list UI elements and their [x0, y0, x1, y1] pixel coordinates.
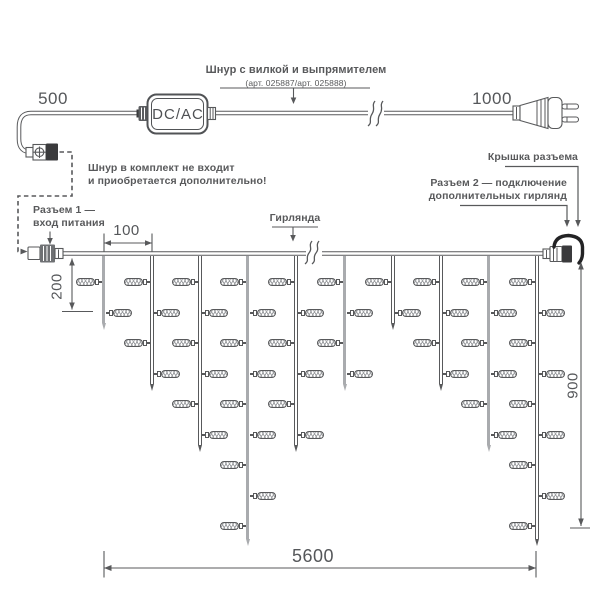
lamp-bulb	[305, 431, 324, 439]
lamp-stem	[291, 342, 294, 344]
led-lamp	[124, 278, 150, 286]
icicle-drop-tip	[391, 323, 395, 330]
cord-annotation-title: Шнур с вилкой и выпрямителем	[196, 64, 396, 76]
lamp-bulb	[220, 461, 239, 469]
led-lamp	[461, 339, 487, 347]
lamp-bulb	[305, 370, 324, 378]
led-lamp	[317, 278, 343, 286]
led-lamp	[268, 278, 294, 286]
led-lamp	[509, 339, 535, 347]
lamp-bulb	[354, 370, 373, 378]
led-lamp	[413, 339, 439, 347]
lamp-bulb	[172, 339, 191, 347]
lamp-stem	[195, 342, 198, 344]
icicle-drop-tip	[102, 323, 106, 330]
icicle-drop-tip	[487, 445, 491, 452]
icicle-drop-tip	[246, 539, 250, 546]
led-lamp	[202, 431, 228, 439]
lamp-bulb	[268, 400, 287, 408]
cap-label: Крышка разъема	[478, 151, 578, 163]
connector1-label-line2: вход питания	[33, 217, 105, 229]
lamp-stem	[243, 403, 246, 405]
icicle-drop-tip	[294, 445, 298, 452]
led-lamp	[220, 339, 246, 347]
lamp-bulb	[124, 278, 143, 286]
led-lamp	[539, 431, 565, 439]
lamp-bulb	[450, 370, 469, 378]
lamp-bulb	[509, 400, 528, 408]
connector1-label-line1: Разъем 1 —	[33, 204, 95, 216]
lamp-stem	[340, 281, 343, 283]
icicle-drop	[102, 256, 105, 323]
lamp-bulb	[498, 309, 517, 317]
led-lamp	[250, 370, 276, 378]
lamp-stem	[532, 464, 535, 466]
icicle-drop	[439, 256, 443, 384]
lamp-bulb	[257, 492, 276, 500]
icicle-drop	[343, 256, 346, 384]
lamp-bulb	[546, 370, 565, 378]
icicle-drop-tip	[343, 384, 347, 391]
lamp-bulb	[257, 431, 276, 439]
lamp-bulb	[220, 339, 239, 347]
lamp-bulb	[461, 400, 480, 408]
cord-not-included-line1: Шнур в комплект не входит	[88, 162, 235, 174]
icicle-drop	[246, 256, 249, 539]
lamp-bulb	[113, 309, 132, 317]
icicle-drop	[294, 256, 298, 445]
lamp-bulb	[365, 278, 384, 286]
lamp-stem	[147, 342, 150, 344]
connector2-label-line2: дополнительных гирлянд	[417, 190, 567, 202]
icicle-drop	[198, 256, 202, 445]
lamp-bulb	[268, 278, 287, 286]
led-lamp	[539, 309, 565, 317]
led-lamp	[202, 370, 228, 378]
led-lamp	[172, 400, 198, 408]
lamp-stem	[484, 403, 487, 405]
dim-200-label: 200	[48, 270, 65, 304]
led-lamp	[365, 278, 391, 286]
lamp-bulb	[172, 278, 191, 286]
led-lamp	[76, 278, 102, 286]
lamp-stem	[147, 281, 150, 283]
led-lamp	[124, 339, 150, 347]
led-lamp	[509, 400, 535, 408]
led-lamp	[220, 278, 246, 286]
led-lamp	[106, 309, 132, 317]
lamp-stem	[291, 403, 294, 405]
icicle-garland-diagram: DC/AC 500 1000 100 200 900 5600 Шнур с в…	[0, 0, 600, 600]
led-lamp	[347, 370, 373, 378]
lamp-bulb	[546, 309, 565, 317]
lamp-bulb	[461, 278, 480, 286]
icicle-drop-tip	[535, 539, 539, 546]
cord-annotation-subtitle: (арт. 025887/арт. 025888)	[196, 77, 396, 89]
led-lamp	[347, 309, 373, 317]
lamp-stem	[243, 342, 246, 344]
lamp-stem	[340, 342, 343, 344]
led-lamp	[202, 309, 228, 317]
lamp-bulb	[220, 278, 239, 286]
icicle-drop-tip	[150, 384, 154, 391]
led-lamp	[491, 370, 517, 378]
lamp-bulb	[317, 339, 336, 347]
led-lamp	[509, 278, 535, 286]
lamp-bulb	[509, 339, 528, 347]
led-lamp	[443, 309, 469, 317]
lamp-stem	[243, 525, 246, 527]
lamp-bulb	[124, 339, 143, 347]
led-lamp	[220, 522, 246, 530]
led-lamp	[298, 370, 324, 378]
lamp-stem	[436, 342, 439, 344]
lamp-bulb	[172, 400, 191, 408]
led-lamp	[268, 339, 294, 347]
dim-5600-label: 5600	[283, 546, 343, 567]
lamp-bulb	[161, 309, 180, 317]
led-lamp	[317, 339, 343, 347]
lamp-bulb	[257, 370, 276, 378]
lamp-bulb	[76, 278, 95, 286]
led-lamp	[509, 522, 535, 530]
lamp-bulb	[509, 278, 528, 286]
lamp-stem	[436, 281, 439, 283]
lamp-stem	[243, 281, 246, 283]
lamp-bulb	[317, 278, 336, 286]
led-lamp	[539, 370, 565, 378]
dim-100-label: 100	[104, 222, 149, 239]
led-lamp	[491, 309, 517, 317]
lamp-bulb	[413, 339, 432, 347]
icicle-drop-tip	[439, 384, 443, 391]
lamp-bulb	[498, 431, 517, 439]
led-lamp	[298, 309, 324, 317]
lamp-bulb	[305, 309, 324, 317]
lamp-bulb	[161, 370, 180, 378]
lamp-stem	[388, 281, 391, 283]
led-lamp	[509, 461, 535, 469]
lamp-bulb	[546, 431, 565, 439]
dcac-label: DC/AC	[148, 96, 208, 133]
lamp-bulb	[268, 339, 287, 347]
lamp-stem	[484, 281, 487, 283]
icicle-drop-tip	[198, 445, 202, 452]
led-lamp	[461, 278, 487, 286]
connector2-label-line1: Разъем 2 — подключение	[417, 177, 567, 189]
lamp-bulb	[220, 400, 239, 408]
led-lamp	[220, 461, 246, 469]
lamp-bulb	[257, 309, 276, 317]
led-lamp	[395, 309, 421, 317]
led-lamp	[443, 370, 469, 378]
lamp-stem	[291, 281, 294, 283]
lamp-bulb	[509, 461, 528, 469]
led-lamp	[413, 278, 439, 286]
lamp-bulb	[450, 309, 469, 317]
dim-1000-label: 1000	[472, 89, 512, 109]
icicle-drop	[487, 256, 490, 445]
garland-label: Гирлянда	[257, 212, 333, 224]
led-lamp	[172, 278, 198, 286]
lamp-stem	[243, 464, 246, 466]
cord-not-included-line2: и приобретается дополнительно!	[88, 175, 267, 187]
dim-500-label: 500	[33, 89, 73, 109]
lamp-bulb	[461, 339, 480, 347]
dim-900-label: 900	[564, 369, 581, 403]
lamp-stem	[532, 342, 535, 344]
led-lamp	[250, 431, 276, 439]
lamp-bulb	[413, 278, 432, 286]
lamp-bulb	[402, 309, 421, 317]
led-lamp	[250, 492, 276, 500]
lamp-bulb	[498, 370, 517, 378]
lamp-stem	[532, 403, 535, 405]
led-lamp	[461, 400, 487, 408]
lamp-bulb	[509, 522, 528, 530]
lamp-stem	[532, 281, 535, 283]
led-lamp	[154, 370, 180, 378]
led-lamp	[172, 339, 198, 347]
lamp-stem	[484, 342, 487, 344]
led-lamp	[539, 492, 565, 500]
lamp-stem	[532, 525, 535, 527]
icicle-drop	[150, 256, 154, 384]
lamp-stem	[195, 281, 198, 283]
led-lamp	[154, 309, 180, 317]
led-lamp	[220, 400, 246, 408]
lamp-bulb	[354, 309, 373, 317]
lamp-stem	[195, 403, 198, 405]
lamp-bulb	[546, 492, 565, 500]
lamp-bulb	[209, 431, 228, 439]
led-lamp	[250, 309, 276, 317]
led-lamp	[491, 431, 517, 439]
lamp-bulb	[220, 522, 239, 530]
lamp-bulb	[209, 309, 228, 317]
led-lamp	[268, 400, 294, 408]
lamp-bulb	[209, 370, 228, 378]
led-lamp	[298, 431, 324, 439]
lamp-stem	[99, 281, 102, 283]
